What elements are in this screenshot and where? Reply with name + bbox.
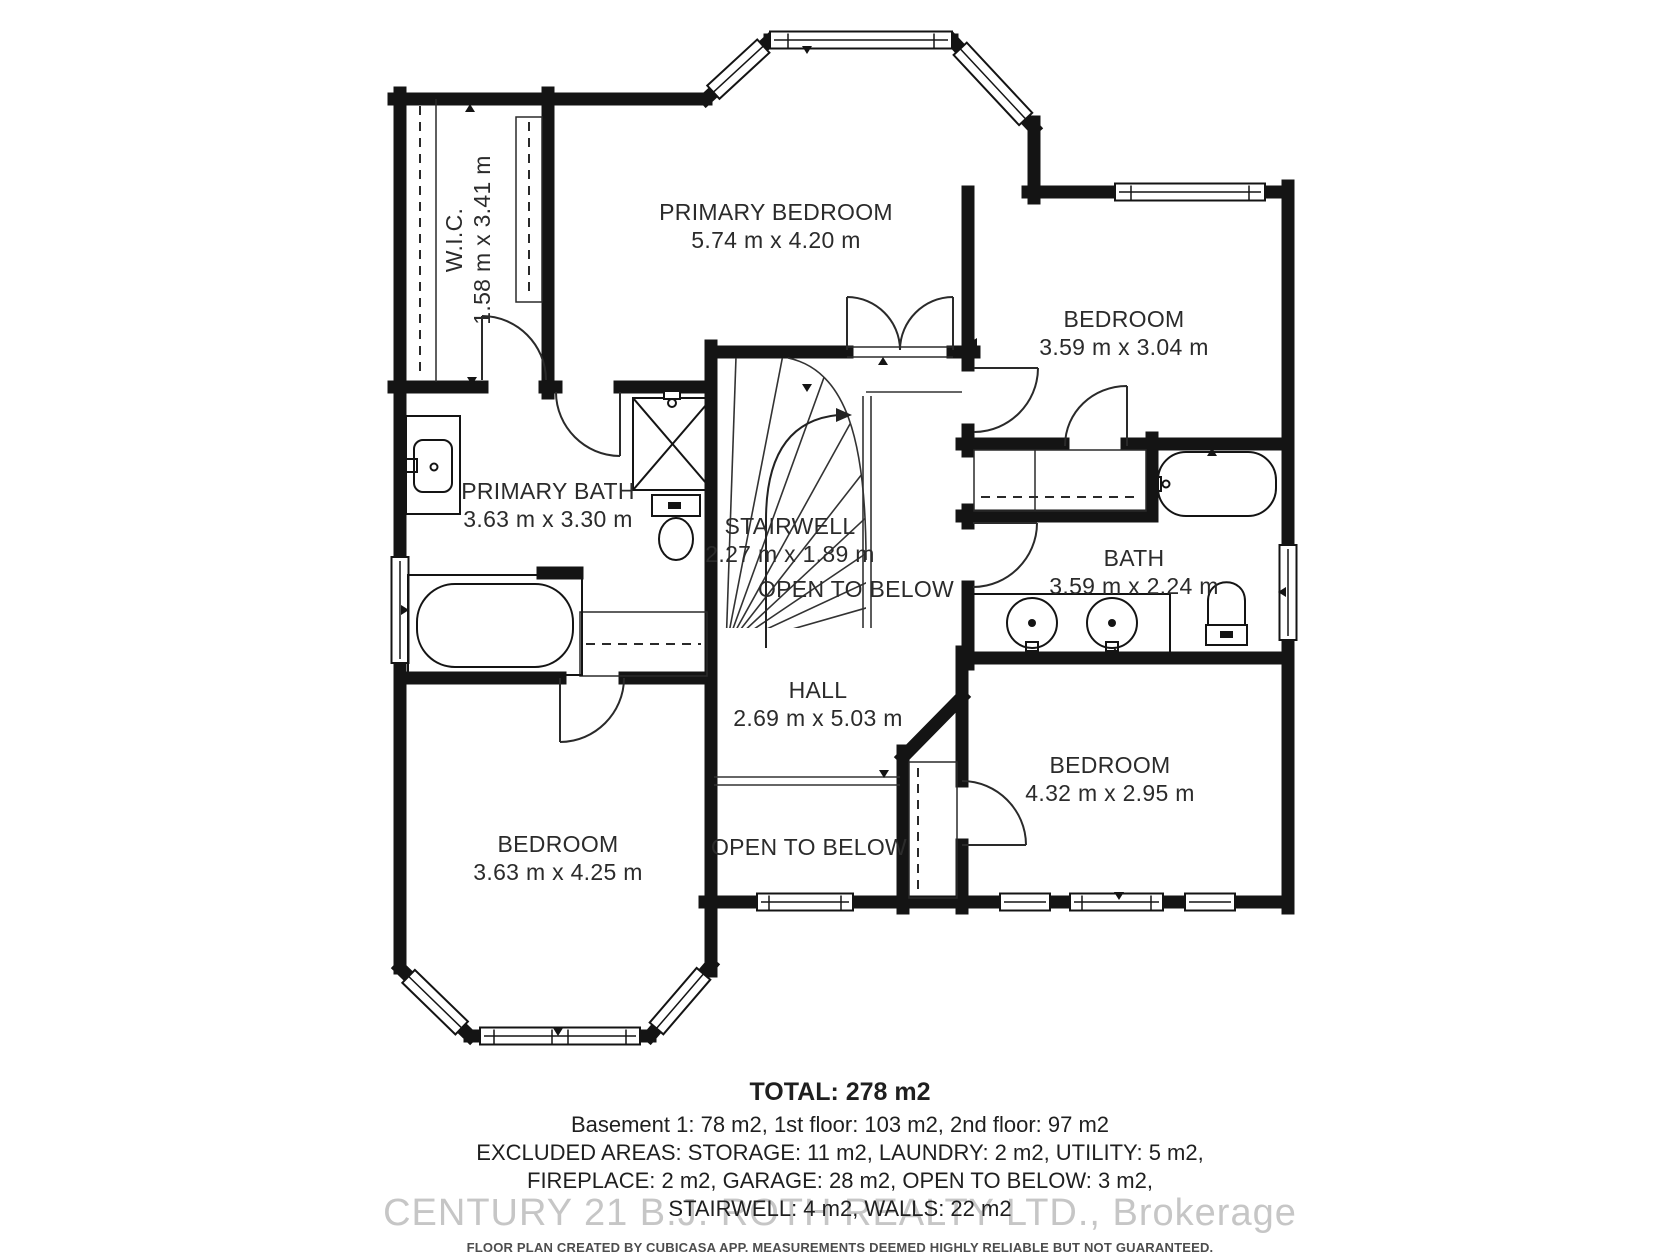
total-area-text: TOTAL: 278 m2 <box>0 1078 1680 1107</box>
room-name: PRIMARY BATH <box>461 477 635 505</box>
room-dims: 1.58 m x 3.41 m <box>468 155 496 324</box>
annotation-text: OPEN TO BELOW <box>711 833 907 861</box>
room-label-hall: HALL 2.69 m x 5.03 m <box>733 676 902 732</box>
room-name: BATH <box>1049 544 1218 572</box>
room-dims: 2.27 m x 1.89 m <box>705 540 874 568</box>
room-name: BEDROOM <box>1039 305 1208 333</box>
disclaimer-text: FLOOR PLAN CREATED BY CUBICASA APP. MEAS… <box>0 1240 1680 1255</box>
excluded-areas-text-3: STAIRWELL: 4 m2, WALLS: 22 m2 <box>0 1196 1680 1222</box>
room-name: W.I.C. <box>440 155 468 324</box>
room-label-primary-bedroom: PRIMARY BEDROOM 5.74 m x 4.20 m <box>659 198 893 254</box>
floors-area-text: Basement 1: 78 m2, 1st floor: 103 m2, 2n… <box>0 1112 1680 1138</box>
room-label-bedroom-bottom-right: BEDROOM 4.32 m x 2.95 m <box>1025 751 1194 807</box>
excluded-areas-text-2: FIREPLACE: 2 m2, GARAGE: 28 m2, OPEN TO … <box>0 1168 1680 1194</box>
room-dims: 3.59 m x 3.04 m <box>1039 333 1208 361</box>
room-name: STAIRWELL <box>705 512 874 540</box>
room-name: BEDROOM <box>1025 751 1194 779</box>
excluded-areas-text-1: EXCLUDED AREAS: STORAGE: 11 m2, LAUNDRY:… <box>0 1140 1680 1166</box>
open-to-below-upper-label: OPEN TO BELOW <box>758 575 954 603</box>
room-label-bedroom-top-right: BEDROOM 3.59 m x 3.04 m <box>1039 305 1208 361</box>
room-label-bedroom-bottom-left: BEDROOM 3.63 m x 4.25 m <box>473 830 642 886</box>
room-dims: 3.63 m x 4.25 m <box>473 858 642 886</box>
room-name: PRIMARY BEDROOM <box>659 198 893 226</box>
room-name: BEDROOM <box>473 830 642 858</box>
floor-plan-page: W.I.C. 1.58 m x 3.41 m PRIMARY BEDROOM 5… <box>0 0 1680 1260</box>
room-dims: 4.32 m x 2.95 m <box>1025 779 1194 807</box>
room-dims: 3.59 m x 2.24 m <box>1049 572 1218 600</box>
open-to-below-lower-label: OPEN TO BELOW <box>711 833 907 861</box>
room-label-stairwell: STAIRWELL 2.27 m x 1.89 m <box>705 512 874 568</box>
room-name: HALL <box>733 676 902 704</box>
room-dims: 2.69 m x 5.03 m <box>733 704 902 732</box>
annotation-text: OPEN TO BELOW <box>758 575 954 603</box>
room-dims: 5.74 m x 4.20 m <box>659 226 893 254</box>
room-dims: 3.63 m x 3.30 m <box>461 505 635 533</box>
room-label-bath: BATH 3.59 m x 2.24 m <box>1049 544 1218 600</box>
room-label-wic: W.I.C. 1.58 m x 3.41 m <box>440 155 496 324</box>
floor-plan-drawing <box>0 0 1680 1260</box>
room-label-primary-bath: PRIMARY BATH 3.63 m x 3.30 m <box>461 477 635 533</box>
